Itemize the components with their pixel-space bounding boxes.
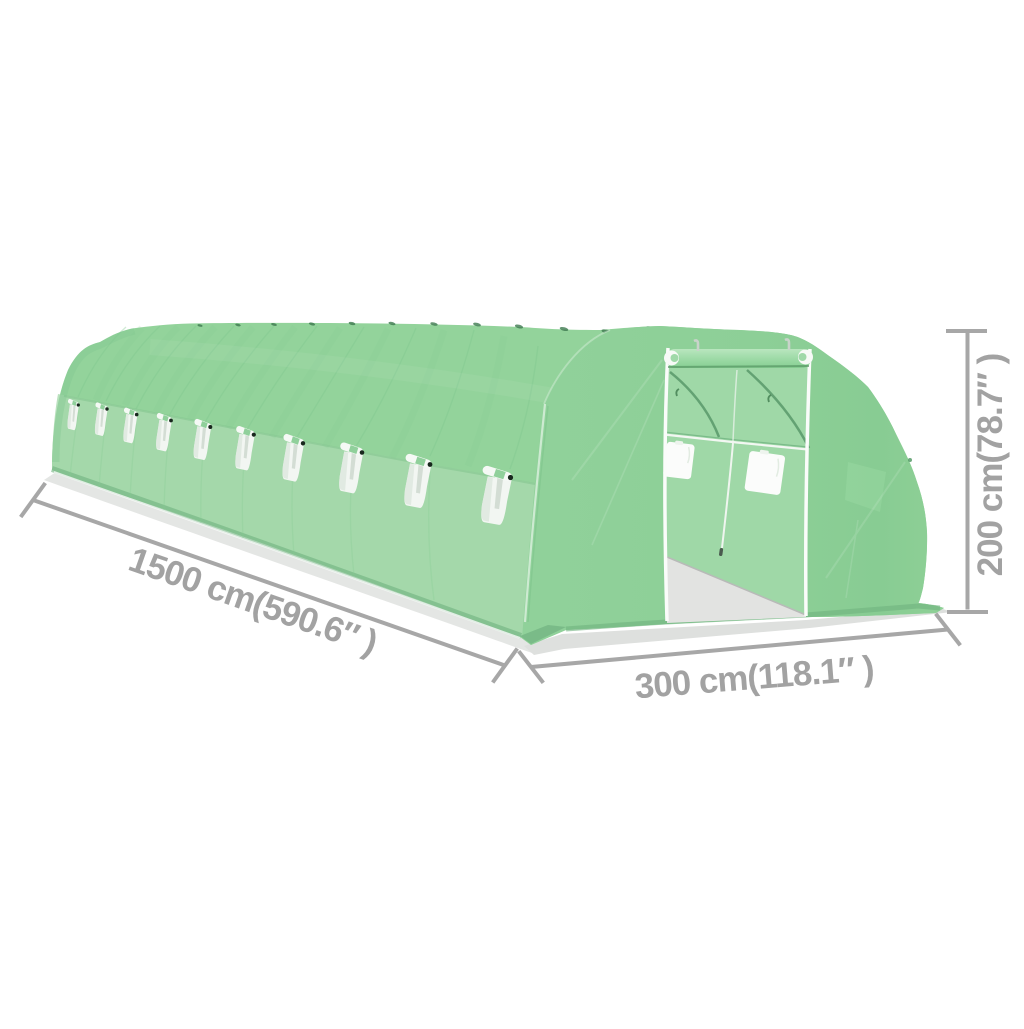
svg-text:200 cm(78.7″ ): 200 cm(78.7″ ) [971,354,1010,577]
svg-text:300 cm(118.1″ ): 300 cm(118.1″ ) [633,649,874,707]
